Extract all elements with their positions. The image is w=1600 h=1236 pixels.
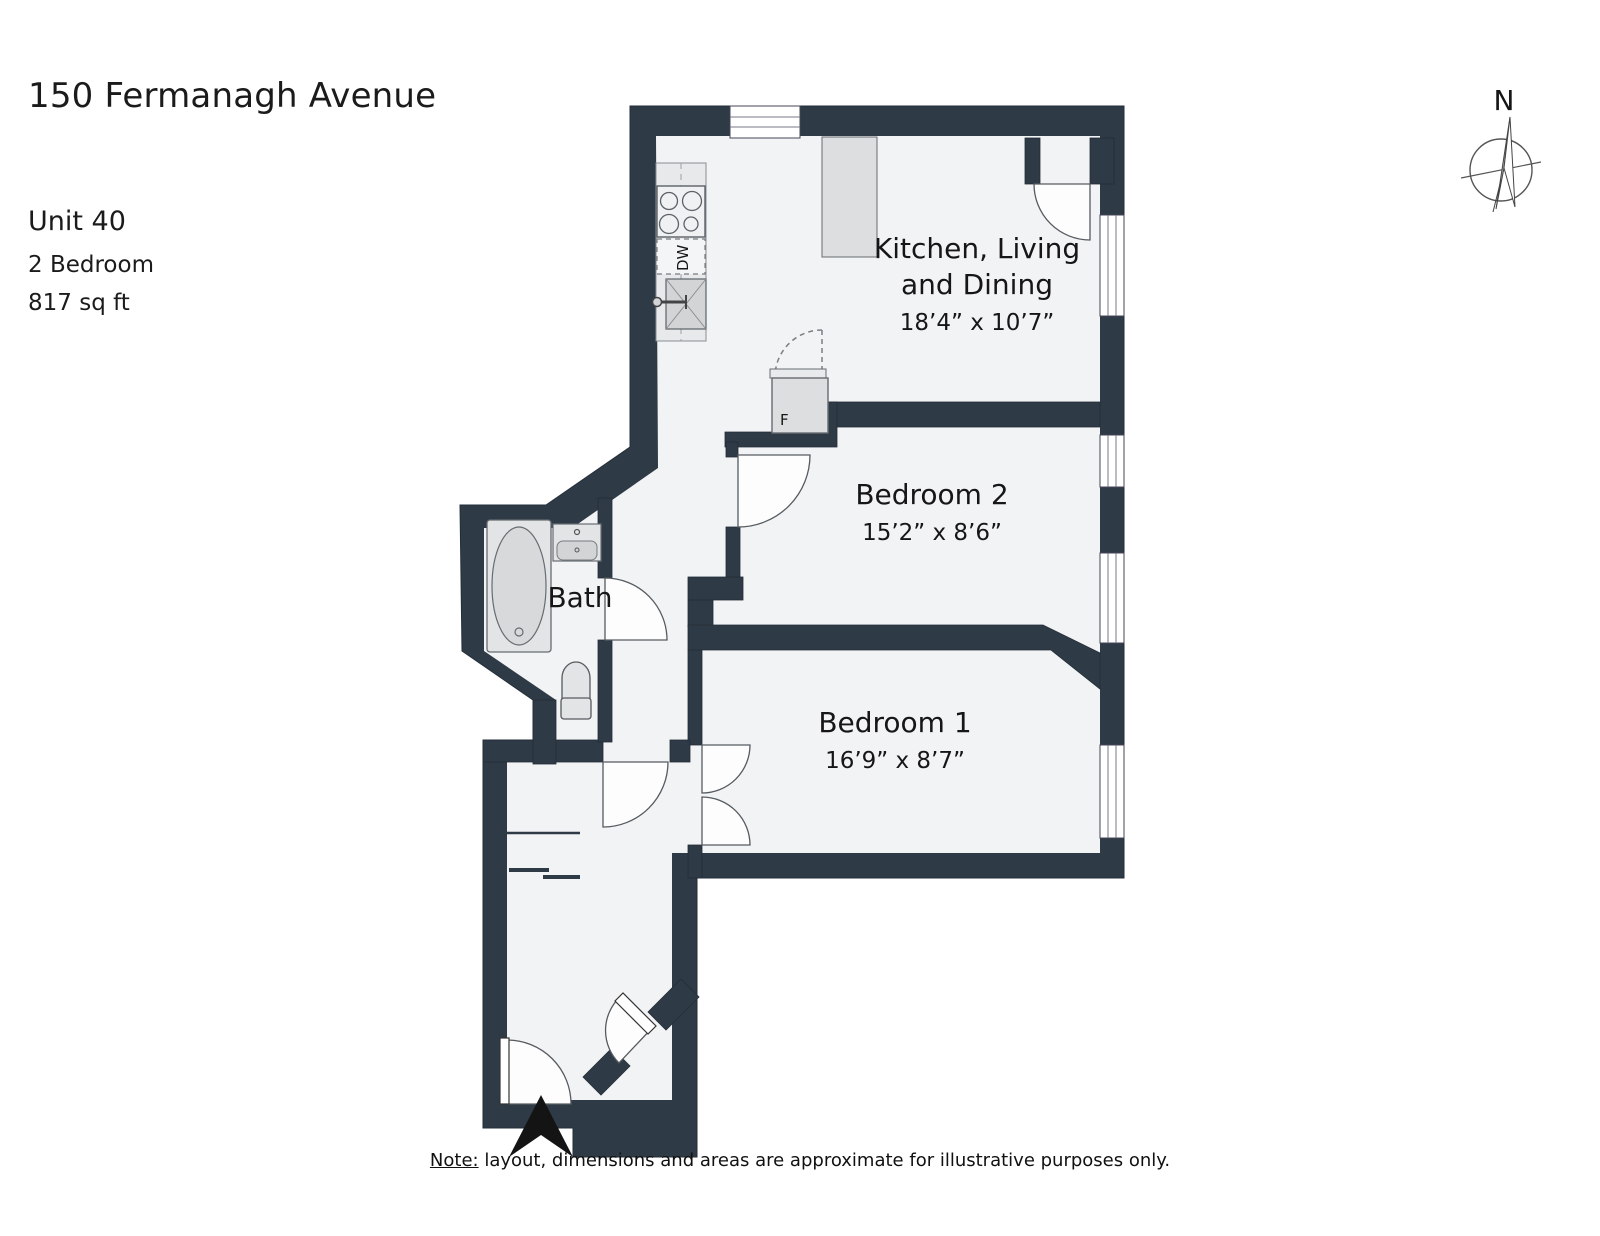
dishwasher-label: DW xyxy=(674,244,692,271)
window-bedroom1 xyxy=(1100,745,1124,838)
window-bedroom2-upper xyxy=(1100,435,1124,487)
wall-bedroom2-left-stub xyxy=(688,600,713,627)
bathroom-sink xyxy=(553,524,601,561)
wall-entry-door-jamb-right xyxy=(1090,138,1114,184)
kitchen-dimensions: 18’4” x 10’7” xyxy=(900,310,1055,336)
dishwasher: DW xyxy=(657,239,705,274)
bedroom1-dimensions: 16’9” x 8’7” xyxy=(825,748,965,774)
kitchen-label-line1: Kitchen, Living xyxy=(874,232,1080,265)
floorplan-page: 150 Fermanagh Avenue Unit 40 2 Bedroom 8… xyxy=(0,0,1600,1236)
window-bedroom2-lower xyxy=(1100,553,1124,643)
toilet xyxy=(561,662,591,719)
stove xyxy=(657,186,705,237)
kitchen-island xyxy=(822,137,877,257)
wall-hall-west xyxy=(533,700,556,764)
door-main-entrance-leaf xyxy=(500,1038,509,1104)
floor-plan-drawing: DW F xyxy=(0,0,1600,1236)
bedroom1-label: Bedroom 1 xyxy=(818,706,971,739)
wall-toilet-niche xyxy=(598,640,612,742)
kitchen-label-line2: and Dining xyxy=(901,268,1053,301)
compass-north-label: N xyxy=(1494,84,1515,117)
bath-label: Bath xyxy=(547,581,612,614)
note-body: layout, dimensions and areas are approxi… xyxy=(479,1150,1170,1171)
wall-bedroom2-left xyxy=(726,527,740,577)
wall-kitchen-bedroom2 xyxy=(828,402,1100,427)
bathtub xyxy=(487,520,551,652)
bedroom2-dimensions: 15’2” x 8’6” xyxy=(862,520,1002,546)
wall-bedroom2-door-jamb xyxy=(726,442,738,457)
wall-bedroom1-left-lower xyxy=(688,845,702,878)
note-prefix: Note: xyxy=(430,1150,479,1171)
fridge-label: F xyxy=(780,411,789,429)
bedroom2-label: Bedroom 2 xyxy=(855,478,1008,511)
wall-bedroom1-left-upper xyxy=(688,650,702,745)
wall-entry-door-jamb-left xyxy=(1025,138,1040,184)
window-top-kitchen xyxy=(730,106,800,138)
compass-rose-icon: N xyxy=(1461,84,1541,212)
window-kitchen-right xyxy=(1100,215,1124,316)
disclaimer-note: Note: layout, dimensions and areas are a… xyxy=(0,1150,1600,1171)
wall-hall-top-right xyxy=(670,740,690,762)
wall-bedroom2-jog xyxy=(688,577,743,600)
